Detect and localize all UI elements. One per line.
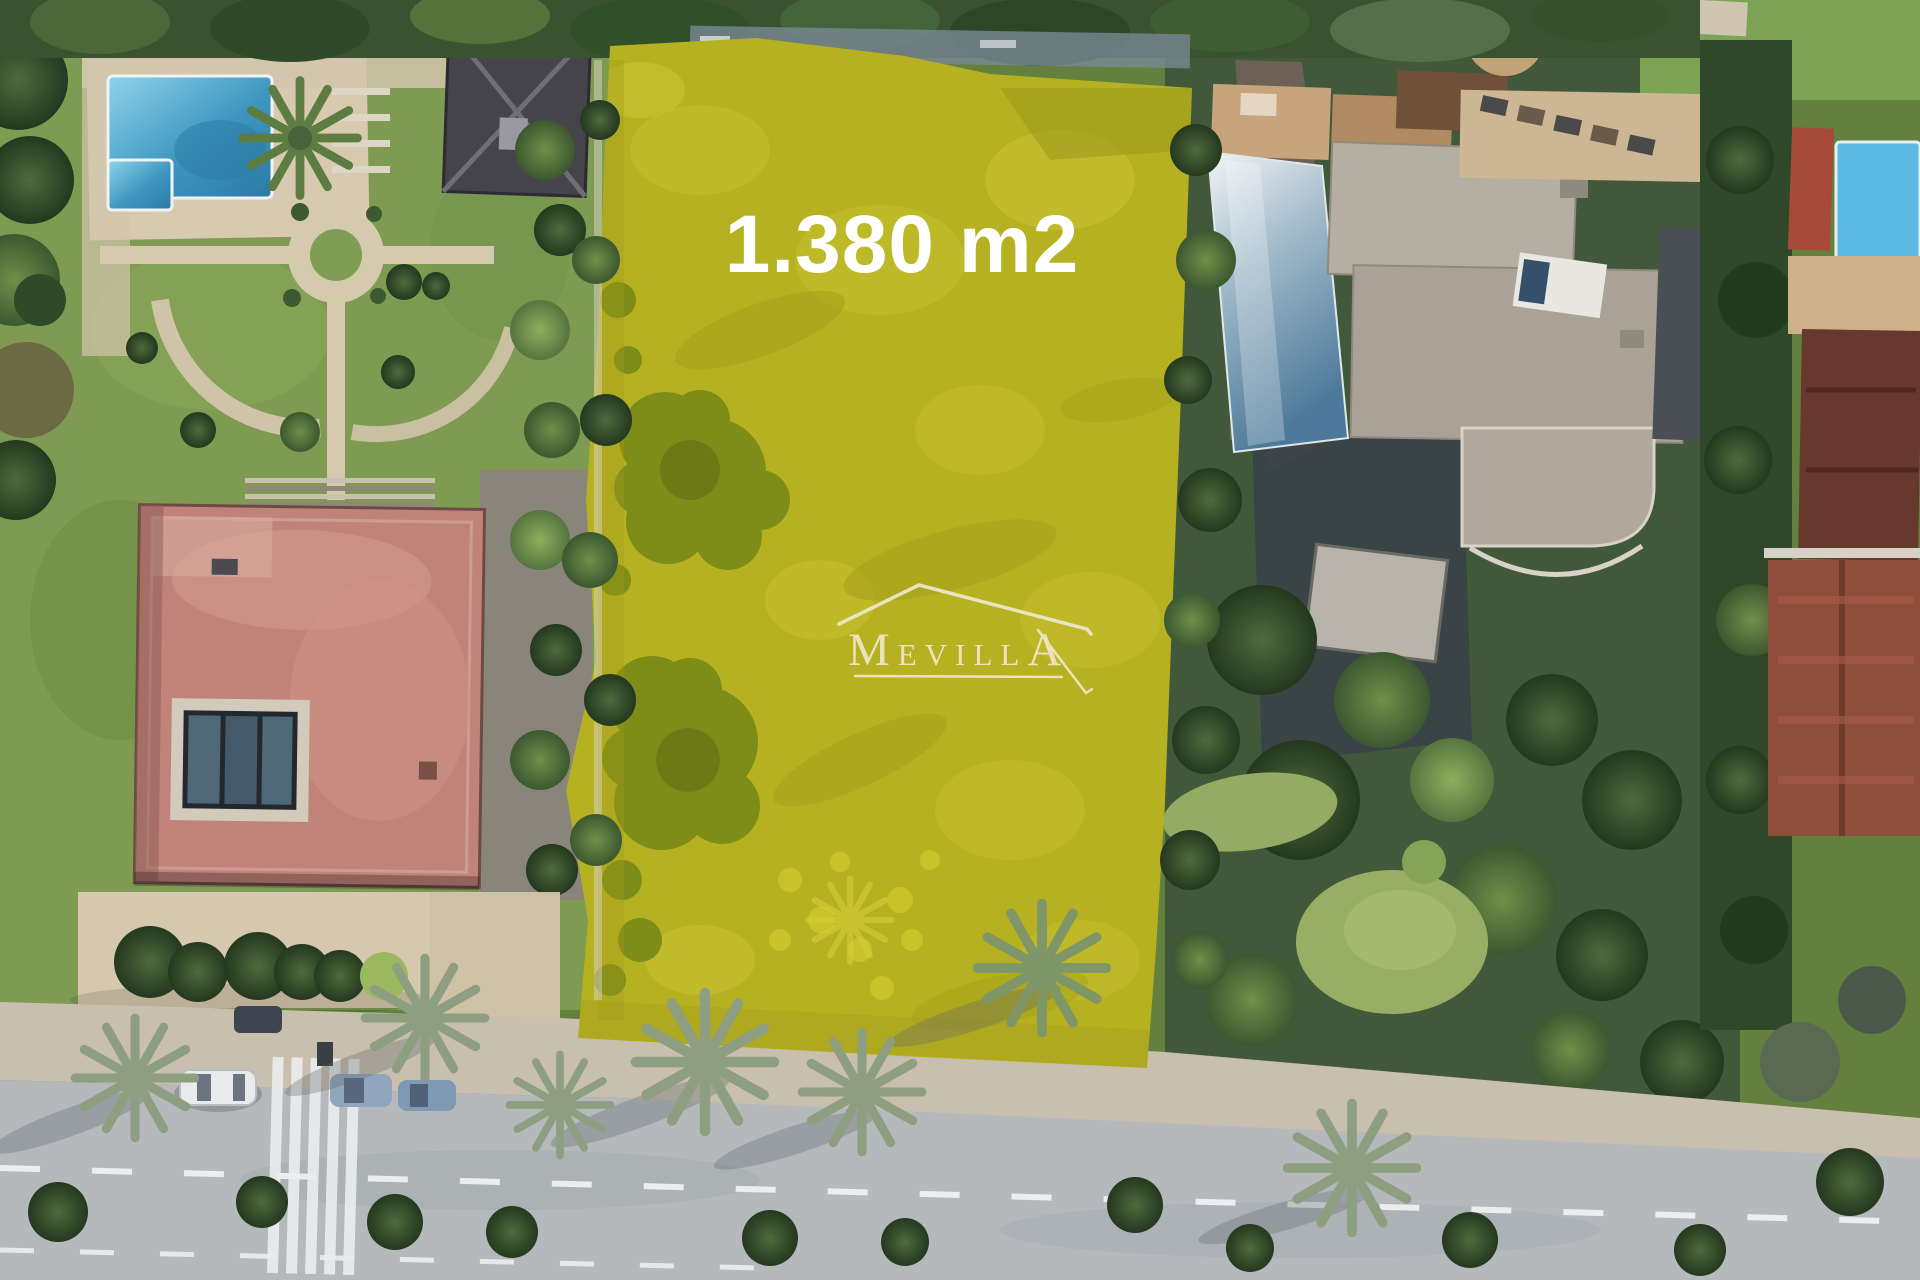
utility-box: [317, 1042, 333, 1066]
skylight: [170, 698, 310, 822]
aerial-photo: MEVILLA 1.380 m2: [0, 0, 1920, 1280]
pink-roof-villa: [134, 505, 484, 891]
right-estate: [1158, 50, 1740, 1180]
small-pool: [1836, 142, 1920, 260]
plot-area-label: 1.380 m2: [725, 199, 1080, 290]
red-wall: [1788, 127, 1834, 250]
dark-car: [234, 1006, 282, 1033]
aerial-image: MEVILLA 1.380 m2: [0, 0, 1920, 1280]
left-estate: [0, 28, 612, 1032]
plot-highlight: [560, 30, 1210, 1080]
swimming-pool: [108, 76, 272, 210]
garden-pavilion: [1304, 544, 1447, 661]
watermark-underline: [855, 676, 1062, 677]
